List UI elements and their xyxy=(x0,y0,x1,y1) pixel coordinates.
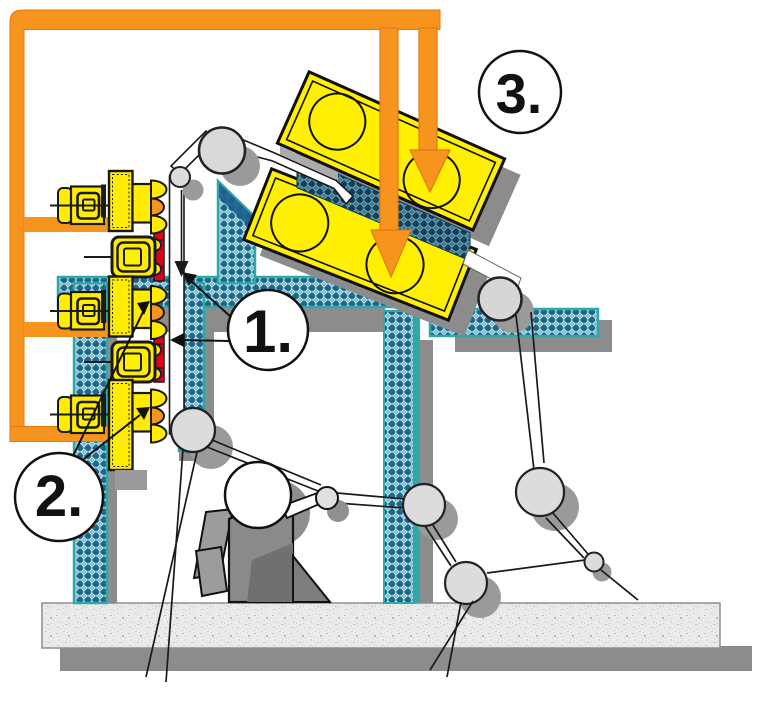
svg-text:3.: 3. xyxy=(496,62,543,125)
svg-text:2.: 2. xyxy=(35,464,83,529)
svg-text:1.: 1. xyxy=(243,298,293,365)
